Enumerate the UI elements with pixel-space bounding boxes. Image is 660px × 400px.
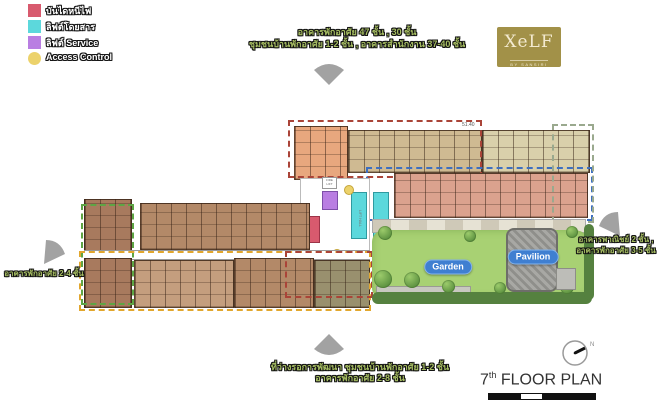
compass-north-label: N — [590, 342, 594, 348]
annotation-top-line2: ชุมชนบ้านพักอาศัย 1-2 ชั้น , อาคารสำนักง… — [190, 38, 524, 50]
tree-icon — [404, 272, 420, 288]
compass-icon: N — [562, 338, 596, 368]
floor-plan-title: 7th FLOOR PLAN — [480, 370, 602, 389]
view-fan-top-icon — [312, 63, 346, 85]
view-fan-left-icon — [42, 236, 66, 266]
view-fan-bottom-icon — [312, 334, 346, 356]
floor-title-text: FLOOR PLAN — [501, 371, 602, 388]
floor-plan-page: บันไดหนีไฟ ลิฟต์โดยสาร ลิฟต์ Service Acc… — [0, 0, 660, 400]
annotation-top-line1: อาคารพักอาศัย 47 ชั้น , 30 ชั้น — [190, 26, 524, 38]
annotation-left-line1: อาคารพักอาศัย 2-4 ชั้น — [0, 268, 88, 279]
legend-label: ลิฟต์โดยสาร — [46, 20, 95, 34]
annotation-bottom: ที่ว่างรอการพัฒนา ชุมชนบ้านพักอาศัย 1-2 … — [215, 362, 505, 384]
legend-label: ลิฟต์ Service — [46, 36, 98, 50]
logo-sub-text: BY SANSIRI — [510, 60, 547, 67]
scale-bar — [488, 393, 596, 400]
pavilion-path — [556, 268, 576, 290]
garden-hedge-bottom — [372, 292, 592, 304]
tree-icon — [464, 230, 476, 242]
access-control-swatch-icon — [28, 52, 41, 65]
floor-number: 7 — [480, 371, 489, 388]
passenger-lift-swatch-icon — [28, 20, 41, 33]
zone-outline-red-bottom — [285, 251, 373, 298]
tree-icon — [442, 280, 455, 293]
service-lift-block — [322, 191, 338, 210]
fire-stair-swatch-icon — [28, 4, 41, 17]
building-block-left-upper-2 — [140, 203, 310, 250]
legend-label: บันไดหนีไฟ — [46, 4, 91, 18]
xelf-sansiri-logo: XeLF BY SANSIRI — [497, 27, 561, 67]
annotation-bottom-line2: อาคารพักอาศัย 2-8 ชั้น — [215, 373, 505, 384]
annotation-left: อาคารพักอาศัย 2-4 ชั้น — [0, 268, 88, 279]
logo-brand-text: XeLF — [497, 31, 561, 53]
tree-icon — [494, 282, 506, 294]
garden-badge: Garden — [424, 260, 472, 275]
fire-lift-label-box: FIRE LIFT — [322, 177, 337, 189]
floor-suffix: th — [489, 370, 497, 380]
lift-hall-label: LIFT HALL — [358, 210, 362, 227]
access-control-dot-1 — [344, 185, 354, 195]
annotation-right: อาคารพาณิชย์ 2 ชั้น , อาคารพักอาศัย 3-5 … — [572, 234, 660, 256]
annotation-right-line2: อาคารพักอาศัย 3-5 ชั้น — [572, 245, 660, 256]
annotation-top: อาคารพักอาศัย 47 ชั้น , 30 ชั้น ชุมชนบ้า… — [190, 26, 524, 50]
annotation-bottom-line1: ที่ว่างรอการพัฒนา ชุมชนบ้านพักอาศัย 1-2 … — [215, 362, 505, 373]
pavilion-badge: Pavilion — [508, 250, 559, 265]
zone-outline-sage-right — [552, 124, 594, 223]
legend-label: Access Control — [46, 52, 112, 62]
annotation-right-line1: อาคารพาณิชย์ 2 ชั้น , — [572, 234, 660, 245]
tree-icon — [374, 270, 392, 288]
tree-icon — [378, 226, 392, 240]
service-lift-swatch-icon — [28, 36, 41, 49]
